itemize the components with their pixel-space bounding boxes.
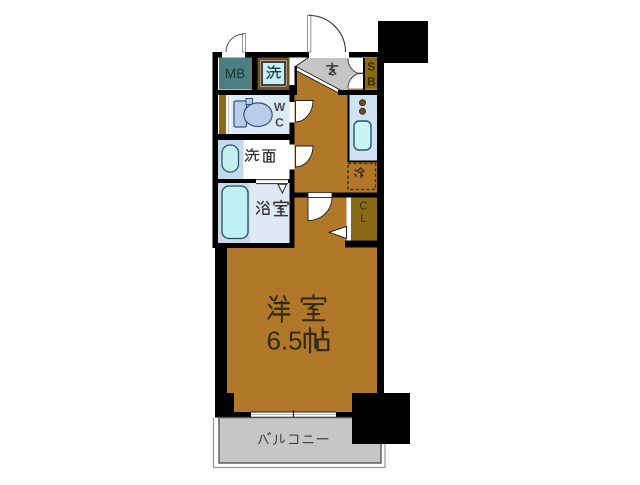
svg-text:S: S bbox=[367, 60, 375, 74]
svg-text:W: W bbox=[274, 100, 286, 114]
svg-text:C: C bbox=[275, 116, 284, 130]
svg-text:L: L bbox=[360, 213, 367, 225]
svg-text:B: B bbox=[367, 75, 376, 89]
svg-text:C: C bbox=[359, 201, 367, 213]
svg-text:6.5: 6.5 bbox=[267, 326, 303, 356]
svg-text:MB: MB bbox=[225, 66, 245, 81]
